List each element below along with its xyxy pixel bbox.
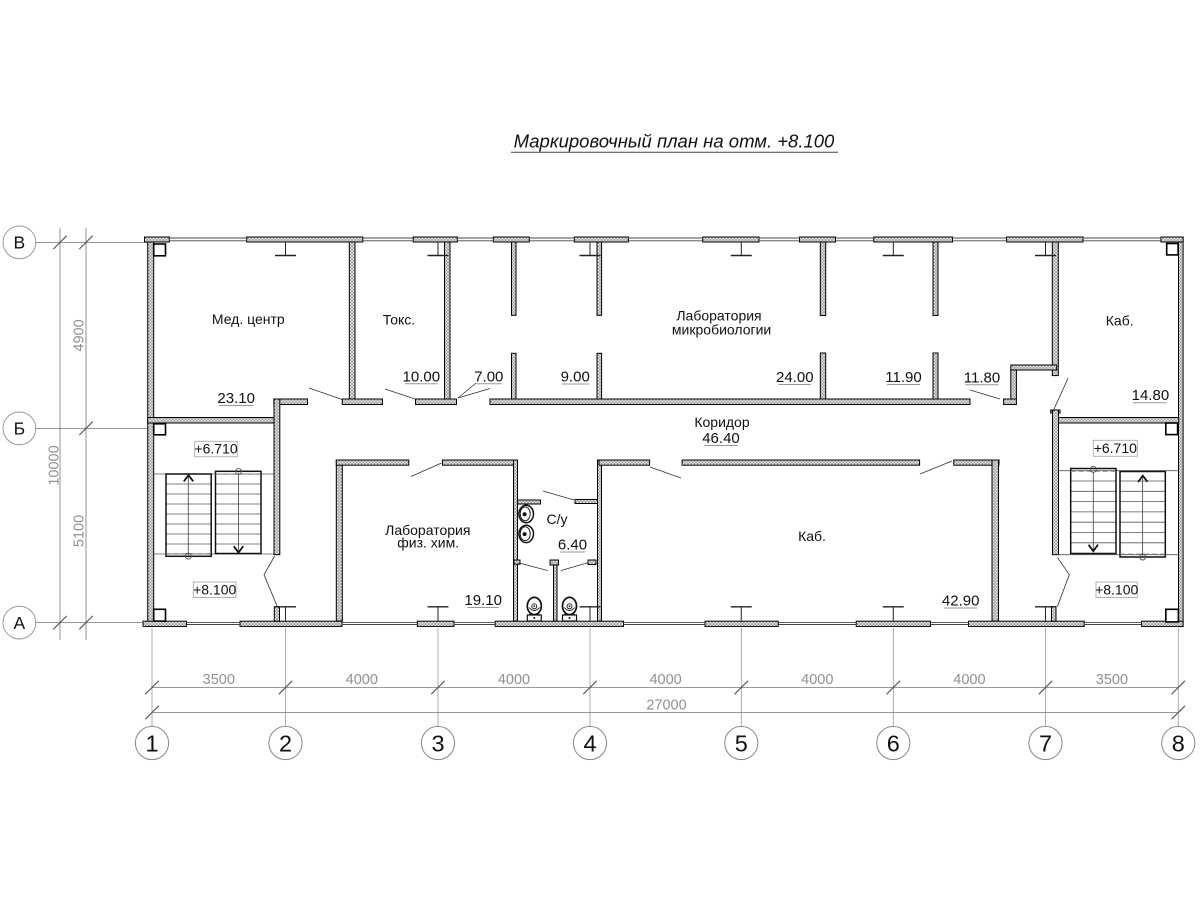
svg-text:4000: 4000 — [801, 672, 833, 688]
svg-text:4: 4 — [583, 730, 596, 756]
svg-text:А: А — [14, 613, 26, 633]
svg-text:6: 6 — [887, 730, 900, 756]
svg-text:27000: 27000 — [646, 698, 686, 714]
svg-text:физ. хим.: физ. хим. — [397, 534, 459, 550]
svg-text:11.80: 11.80 — [964, 369, 1000, 386]
svg-text:1: 1 — [145, 730, 158, 756]
svg-text:4000: 4000 — [498, 672, 530, 688]
svg-text:7.00: 7.00 — [474, 368, 503, 385]
svg-text:+6.710: +6.710 — [1094, 440, 1137, 456]
svg-text:Маркировочный план на отм. +8.: Маркировочный план на отм. +8.100 — [514, 131, 835, 152]
svg-text:Мед. центр: Мед. центр — [212, 311, 285, 327]
svg-text:Токс.: Токс. — [383, 312, 415, 328]
svg-text:4900: 4900 — [72, 319, 88, 351]
svg-text:5100: 5100 — [72, 515, 88, 547]
svg-text:В: В — [14, 233, 26, 253]
svg-text:+6.710: +6.710 — [194, 441, 237, 457]
svg-text:+8.100: +8.100 — [1095, 581, 1138, 597]
svg-text:3500: 3500 — [203, 672, 235, 688]
svg-text:10.00: 10.00 — [403, 368, 441, 385]
svg-text:3500: 3500 — [1096, 672, 1128, 688]
svg-text:8: 8 — [1172, 730, 1185, 756]
svg-text:3: 3 — [431, 730, 444, 756]
svg-text:23.10: 23.10 — [217, 390, 255, 407]
svg-text:7: 7 — [1039, 730, 1052, 756]
svg-text:2: 2 — [279, 730, 292, 756]
svg-text:Коридор: Коридор — [694, 414, 750, 430]
svg-text:11.90: 11.90 — [885, 369, 921, 386]
svg-text:+8.100: +8.100 — [193, 581, 236, 597]
svg-text:С/у: С/у — [547, 511, 568, 527]
svg-text:микробиологии: микробиологии — [672, 322, 771, 338]
svg-text:6.40: 6.40 — [558, 537, 587, 554]
svg-text:Каб.: Каб. — [798, 528, 826, 544]
svg-text:24.00: 24.00 — [776, 369, 814, 386]
svg-text:9.00: 9.00 — [561, 369, 590, 386]
svg-text:Каб.: Каб. — [1106, 313, 1134, 329]
svg-text:4000: 4000 — [346, 672, 378, 688]
svg-text:5: 5 — [735, 730, 748, 756]
svg-text:14.80: 14.80 — [1132, 387, 1170, 404]
svg-text:4000: 4000 — [953, 672, 985, 688]
svg-text:42.90: 42.90 — [942, 593, 980, 610]
svg-text:10000: 10000 — [47, 445, 63, 485]
svg-text:Б: Б — [14, 419, 25, 439]
svg-text:19.10: 19.10 — [464, 592, 502, 609]
svg-text:4000: 4000 — [649, 672, 681, 688]
svg-text:46.40: 46.40 — [702, 430, 740, 447]
